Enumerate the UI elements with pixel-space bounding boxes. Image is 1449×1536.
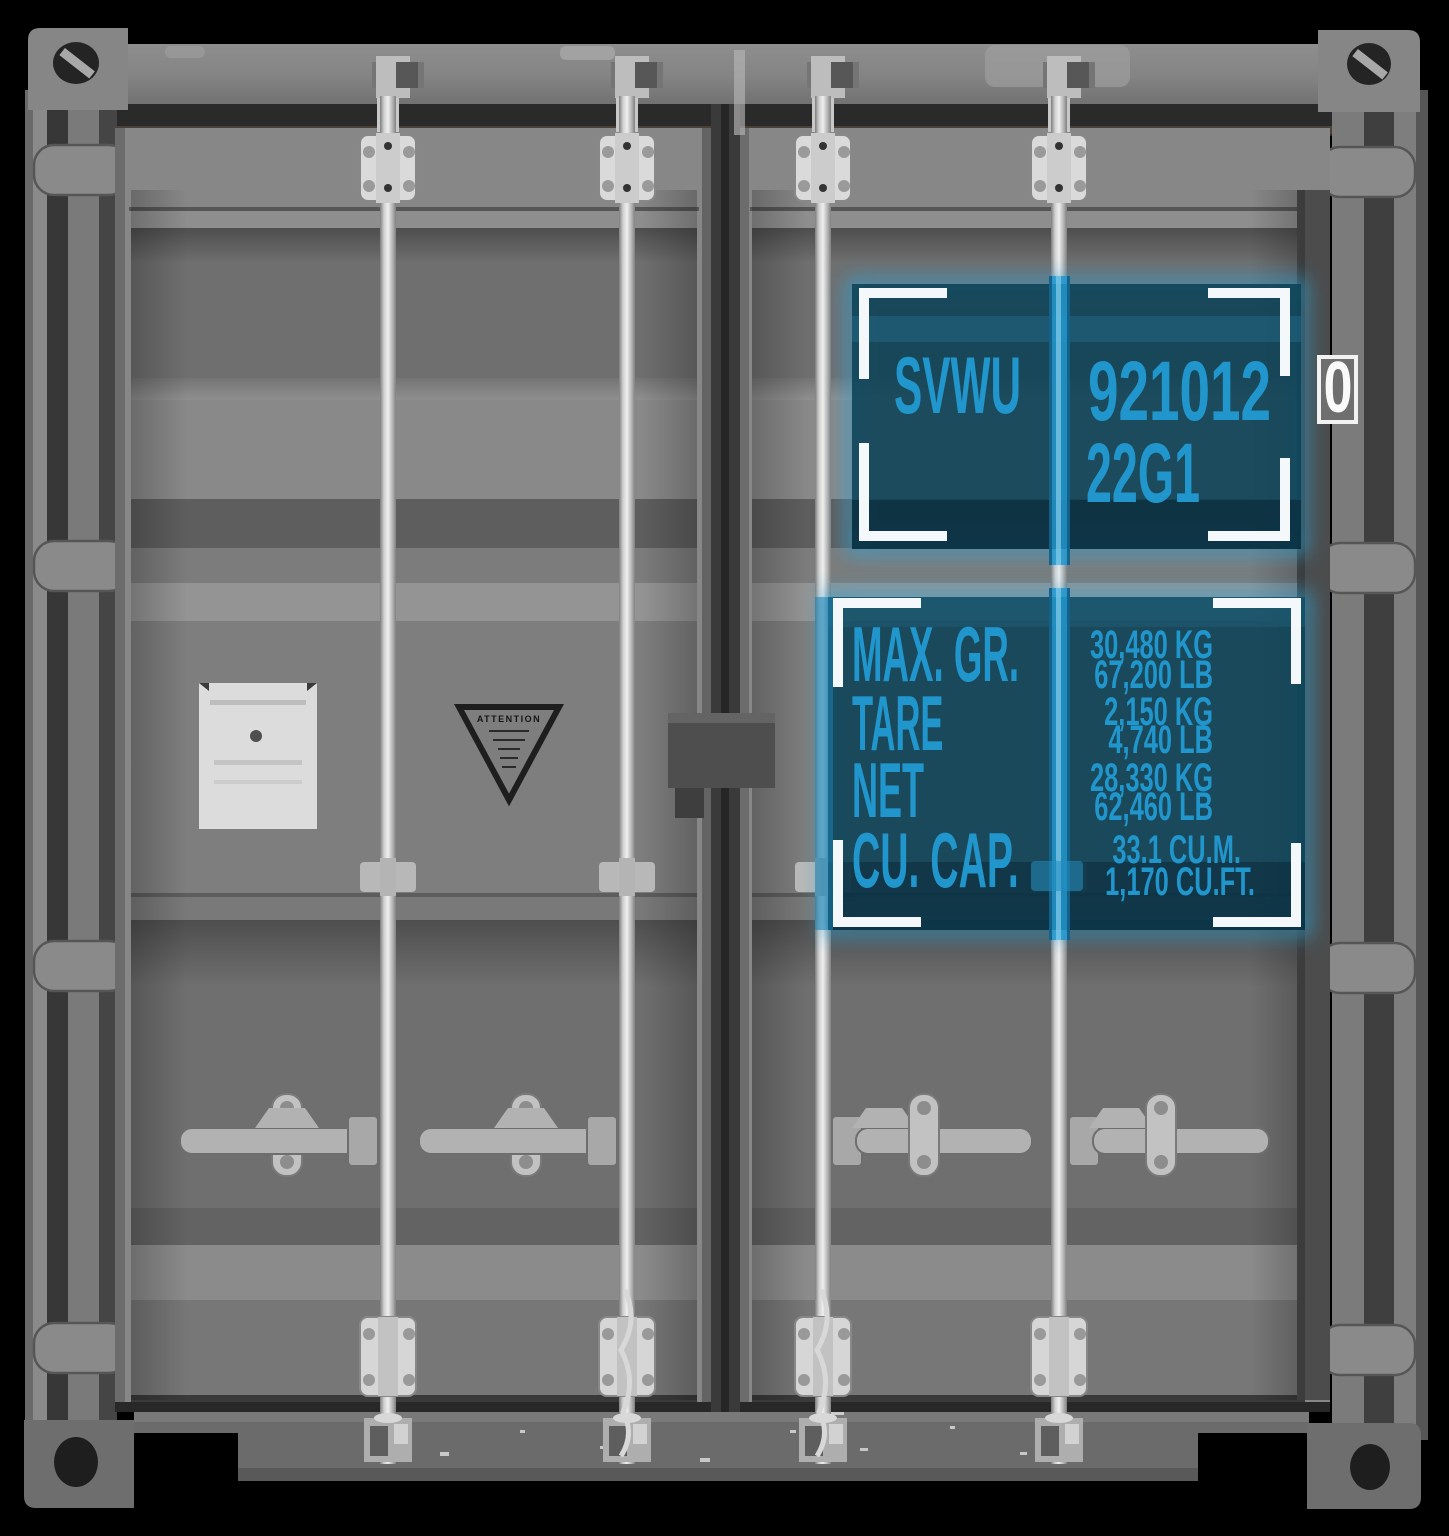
svg-text:CU. CAP.: CU. CAP.: [852, 817, 1019, 904]
svg-text:1,170 CU.FT.: 1,170 CU.FT.: [1105, 860, 1255, 904]
svg-text:22G1: 22G1: [1086, 428, 1200, 521]
svg-text:62,460 LB: 62,460 LB: [1094, 785, 1213, 829]
svg-text:921012: 921012: [1088, 345, 1271, 439]
svg-text:0: 0: [1324, 348, 1353, 428]
svg-text:SVWU: SVWU: [894, 339, 1021, 430]
svg-text:ATTENTION: ATTENTION: [477, 714, 541, 724]
